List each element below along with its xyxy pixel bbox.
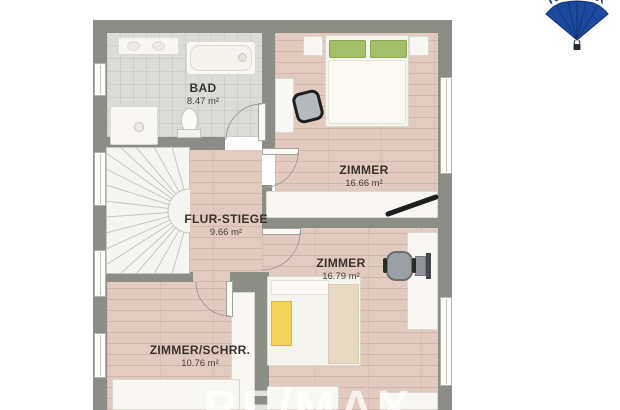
remax-balloon-logo-icon: RE/MAX [536, 0, 618, 58]
room-name: ZIMMER [316, 256, 365, 271]
tv [388, 197, 436, 214]
room-name: ZIMMER/SCHRR. [150, 343, 251, 358]
balloon-basket [574, 44, 581, 50]
room-area: 16.66 m² [339, 178, 388, 190]
room-area: 16.79 m² [316, 271, 365, 283]
door-arc-room-left [196, 282, 230, 316]
balloon-rope [579, 40, 580, 44]
room-area: 8.47 m² [187, 96, 219, 108]
room-label-bad: BAD 8.47 m² [187, 81, 219, 108]
door-arc-bedroom-top [262, 152, 298, 188]
room-label-zimmer-right: ZIMMER 16.79 m² [316, 256, 365, 283]
room-label-flur-stiege: FLUR-STIEGE 9.66 m² [184, 212, 267, 239]
door-arc-bedroom-right [262, 232, 300, 270]
balloon-rope [574, 40, 575, 44]
room-name: FLUR-STIEGE [184, 212, 267, 227]
room-label-zimmer-schrr: ZIMMER/SCHRR. 10.76 m² [150, 343, 251, 370]
room-area: 10.76 m² [150, 358, 251, 370]
door-arc-bath [226, 104, 262, 140]
floorplan-canvas: BAD 8.47 m² ZIMMER 16.66 m² FLUR-STIEGE … [0, 0, 620, 410]
room-name: ZIMMER [339, 163, 388, 178]
room-label-zimmer-top: ZIMMER 16.66 m² [339, 163, 388, 190]
room-area: 9.66 m² [184, 227, 267, 239]
watermark: RE/MAX [203, 381, 414, 410]
plan-linework-overlay [0, 0, 620, 410]
room-name: BAD [187, 81, 219, 96]
